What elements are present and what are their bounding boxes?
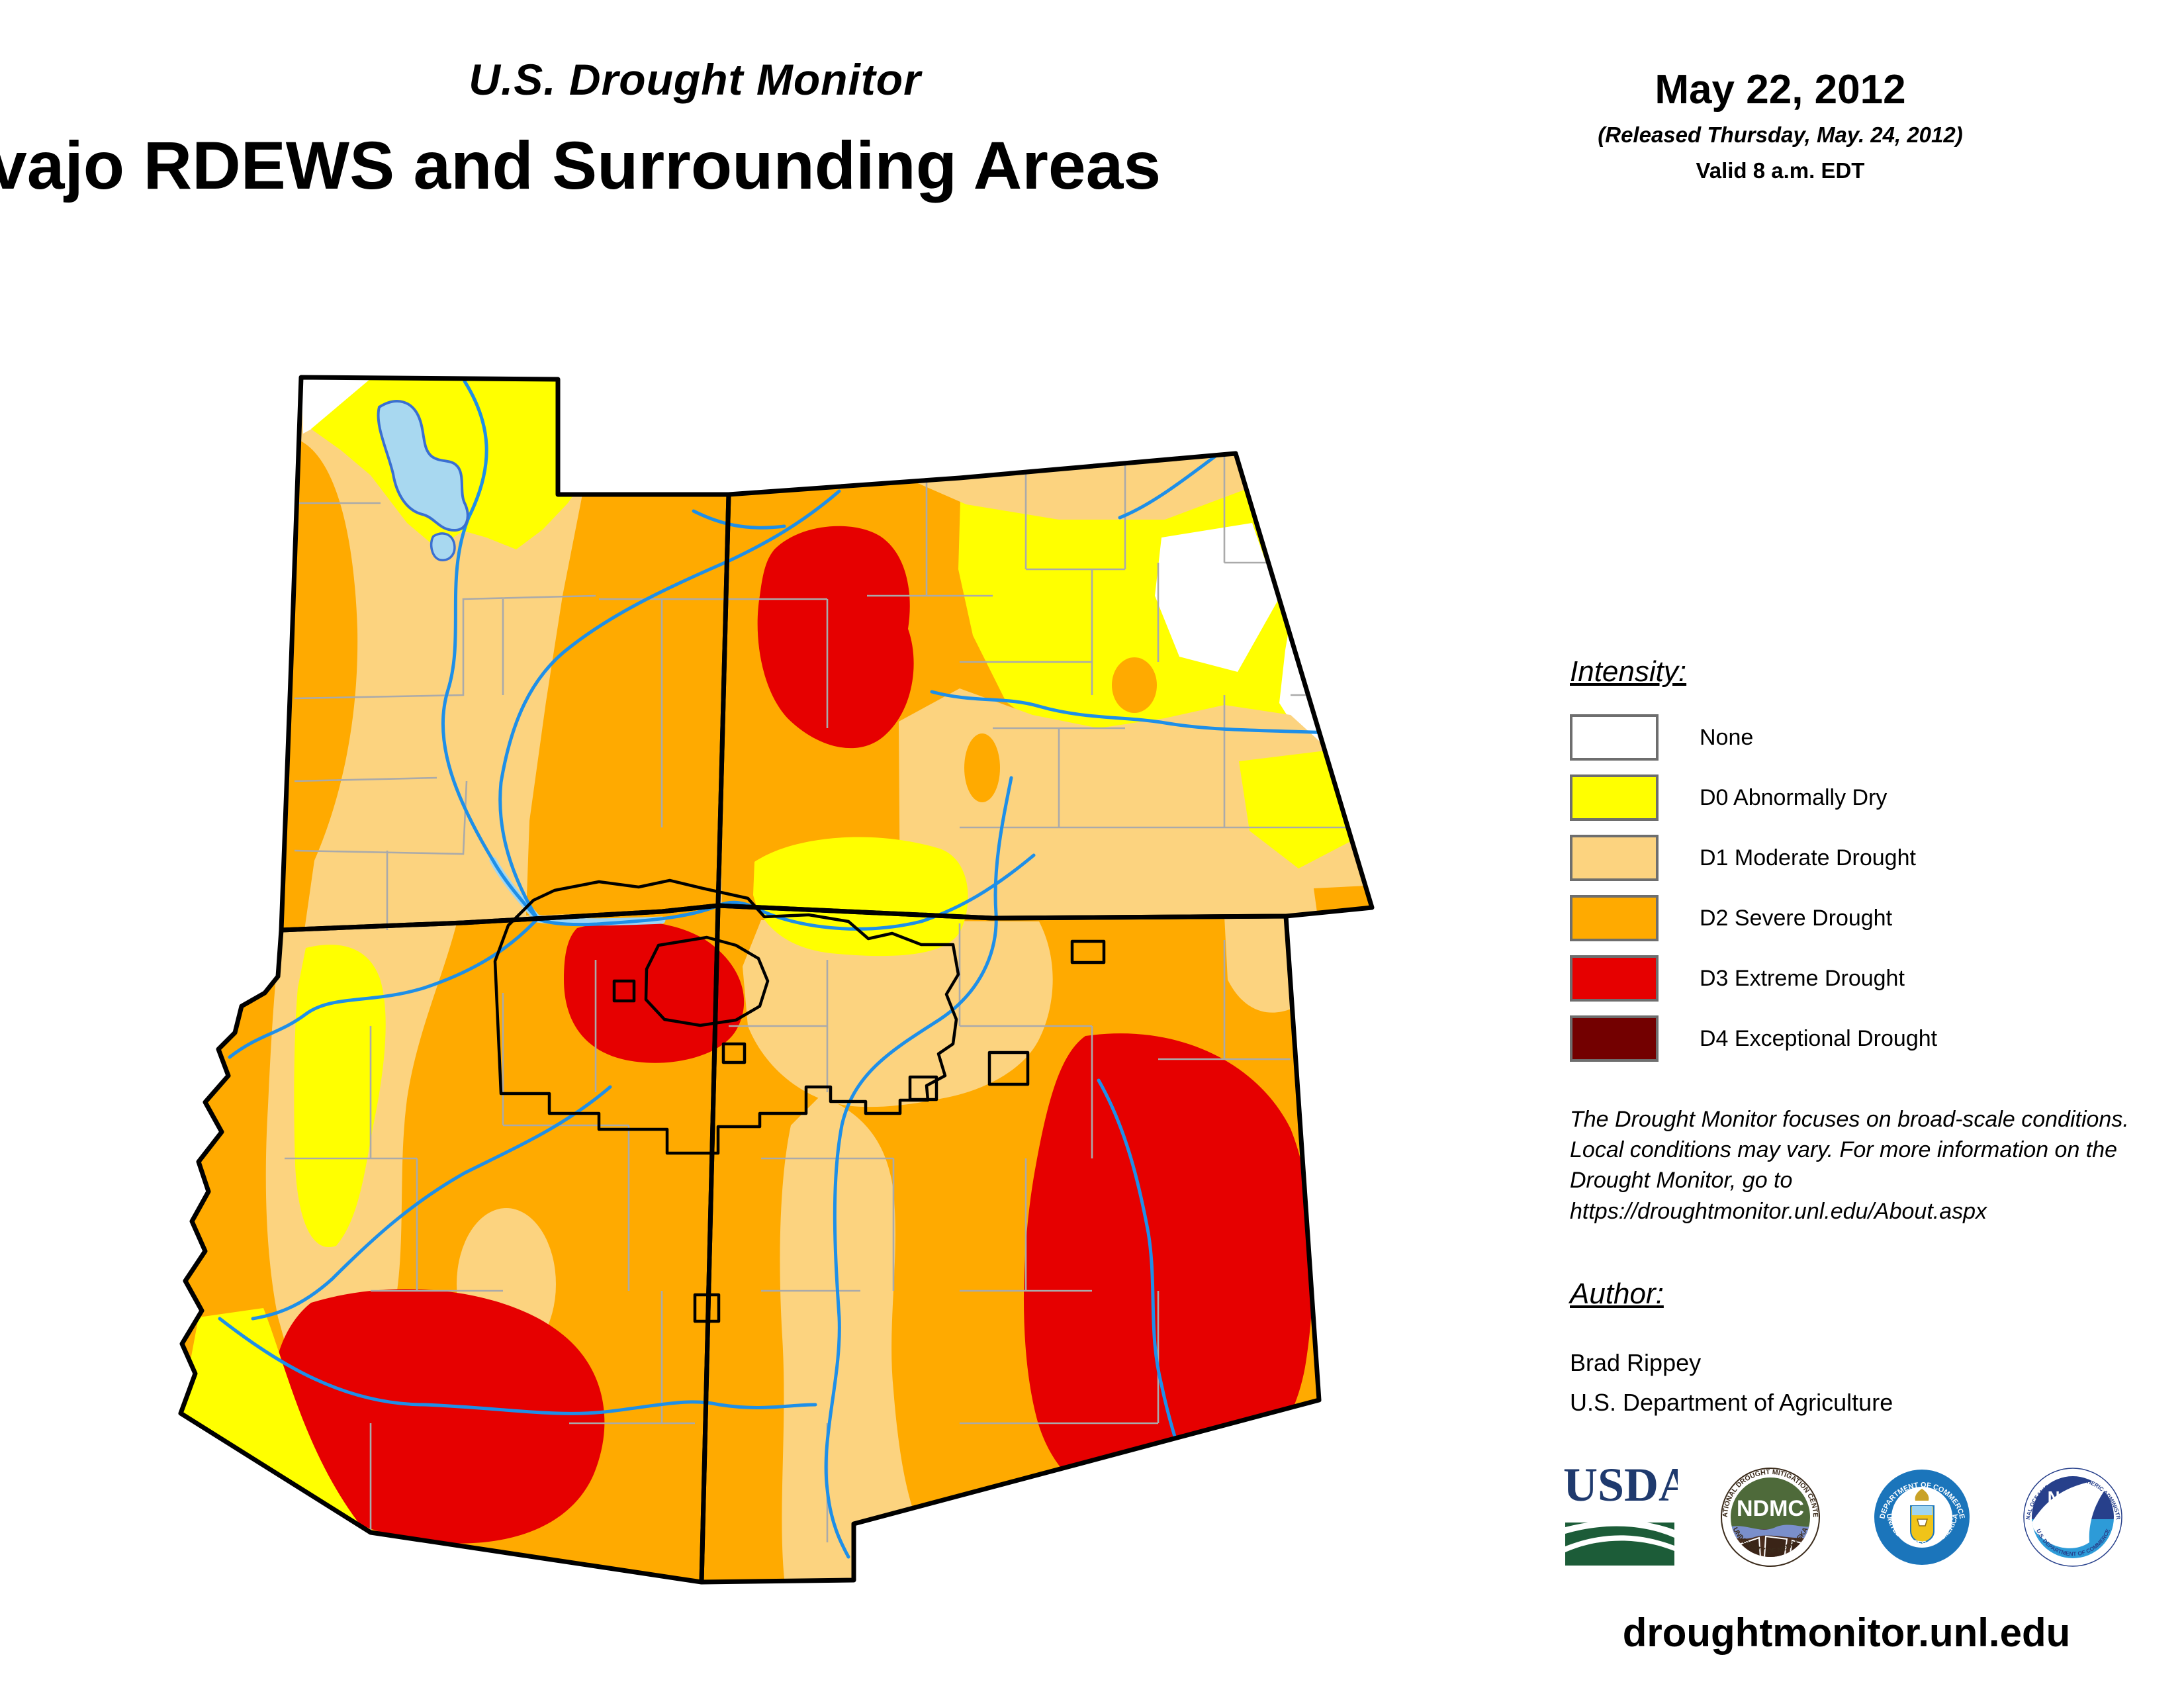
footer-url: droughtmonitor.unl.edu: [1542, 1610, 2151, 1656]
legend-label: D3 Extreme Drought: [1700, 966, 1905, 992]
legend-row-d0: D0 Abnormally Dry: [1570, 774, 2152, 821]
ndmc-wordmark: NDMC: [1737, 1496, 1804, 1521]
commerce-seal: DEPARTMENT OF COMMERCE UNITED STATES OF …: [1864, 1460, 1980, 1575]
author-name: Brad Rippey: [1570, 1349, 1701, 1377]
release-date: (Released Thursday, May. 24, 2012): [1516, 122, 2045, 148]
swatch-d0: [1570, 774, 1659, 821]
utah-lake: [432, 534, 455, 560]
legend-label: D1 Moderate Drought: [1700, 845, 1916, 871]
drought-d2-colorado-oval-a: [1112, 657, 1157, 713]
usda-logo: USDA: [1562, 1460, 1678, 1575]
legend-label: D0 Abnormally Dry: [1700, 785, 1887, 811]
state-new-mexico-fills: [695, 900, 1330, 1589]
doc-shield-chief: [1912, 1506, 1933, 1515]
noaa-logo: NOAA NATIONAL OCEANIC AND ATMOSPHERIC AD…: [2015, 1460, 2131, 1575]
drought-d0-fourcorners-ne: [753, 837, 968, 957]
legend-row-none: None: [1570, 714, 2152, 761]
legend-row-d3: D3 Extreme Drought: [1570, 955, 2152, 1002]
author-org: U.S. Department of Agriculture: [1570, 1389, 1893, 1417]
disclaimer-text: The Drought Monitor focuses on broad-sca…: [1570, 1104, 2184, 1227]
legend-row-d2: D2 Severe Drought: [1570, 894, 2152, 942]
valid-time: Valid 8 a.m. EDT: [1516, 158, 2045, 183]
agency-logos: USDA NDMC NATIONAL DROUGHT MITIGATION CE…: [1562, 1456, 2131, 1579]
map-date: May 22, 2012: [1516, 66, 2045, 113]
drought-d2-colorado-oval-b: [964, 733, 1000, 802]
legend-label: D2 Severe Drought: [1700, 906, 1892, 931]
legend-row-d1: D1 Moderate Drought: [1570, 834, 2152, 882]
legend-label: D4 Exceptional Drought: [1700, 1026, 1937, 1052]
doc-ship: [1917, 1519, 1927, 1526]
noaa-wordmark: NOAA: [2048, 1487, 2099, 1507]
ndmc-logo: NDMC NATIONAL DROUGHT MITIGATION CENTER …: [1713, 1460, 1829, 1575]
state-utah-fills: [278, 371, 735, 940]
swatch-d2: [1570, 895, 1659, 941]
swatch-d1: [1570, 835, 1659, 881]
legend-heading: Intensity:: [1570, 655, 2152, 688]
intensity-legend: Intensity: None D0 Abnormally Dry D1 Mod…: [1570, 655, 2152, 1075]
monitor-title: U.S. Drought Monitor: [278, 54, 1112, 105]
drought-monitor-page: U.S. Drought Monitor vajo RDEWS and Surr…: [0, 0, 2184, 1688]
swatch-d3: [1570, 955, 1659, 1002]
region-title: vajo RDEWS and Surrounding Areas: [0, 127, 1161, 205]
author-heading: Author:: [1570, 1278, 1664, 1311]
legend-row-d4: D4 Exceptional Drought: [1570, 1015, 2152, 1062]
swatch-d4: [1570, 1015, 1659, 1062]
drought-d3-newmexico-se: [1024, 1033, 1313, 1507]
drought-none-colorado-ne-corner: [1318, 455, 1367, 506]
legend-label: None: [1700, 725, 1753, 751]
usda-wordmark: USDA: [1563, 1460, 1678, 1511]
date-block: May 22, 2012 (Released Thursday, May. 24…: [1516, 66, 2045, 183]
swatch-none: [1570, 714, 1659, 761]
